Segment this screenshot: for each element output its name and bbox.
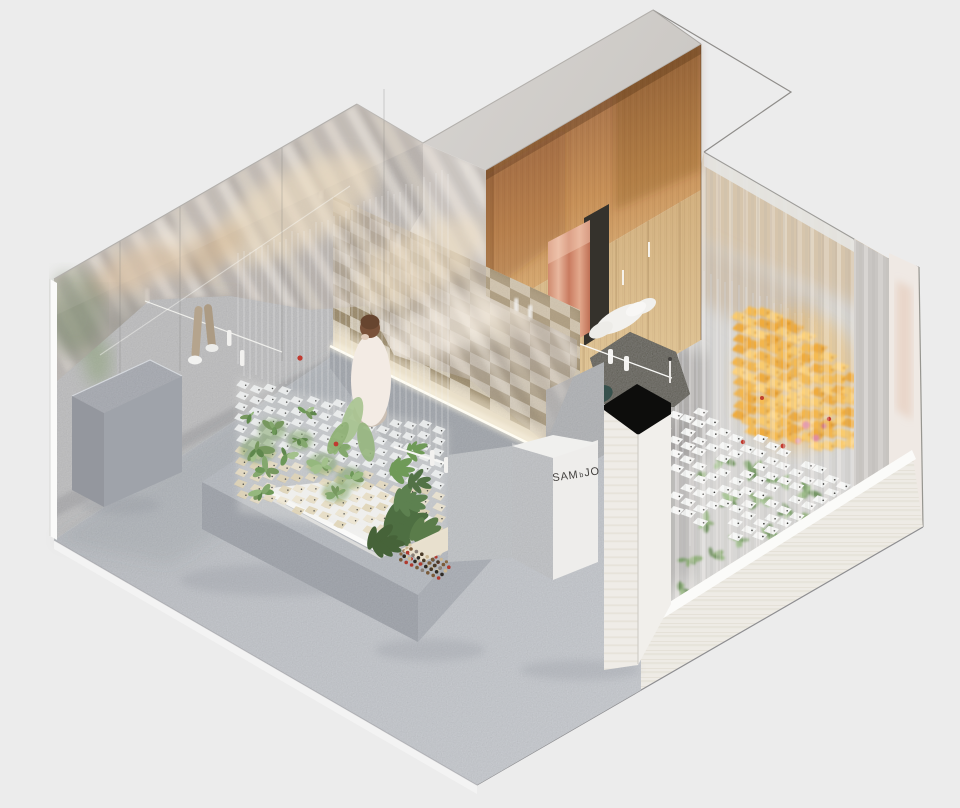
svg-text:JO: JO bbox=[584, 465, 601, 479]
